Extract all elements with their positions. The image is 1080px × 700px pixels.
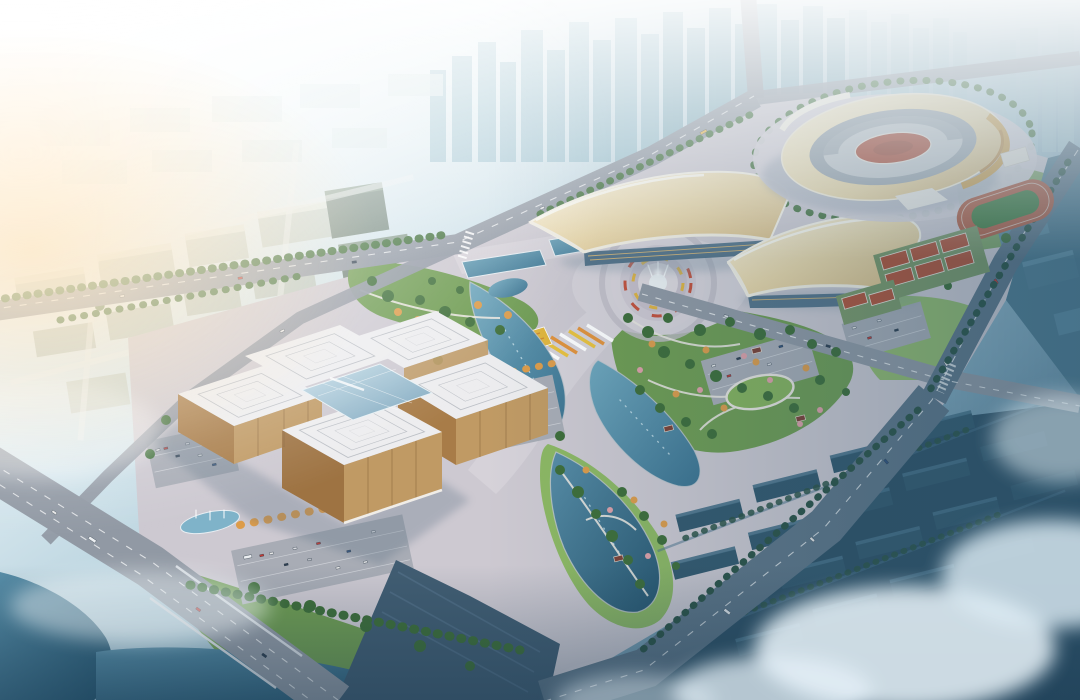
aerial-rendering: Aerial rendering of a civic sports and c… [0, 0, 1080, 700]
rendering-canvas: Aerial rendering of a civic sports and c… [0, 0, 1080, 700]
warm-glow [0, 0, 1080, 700]
